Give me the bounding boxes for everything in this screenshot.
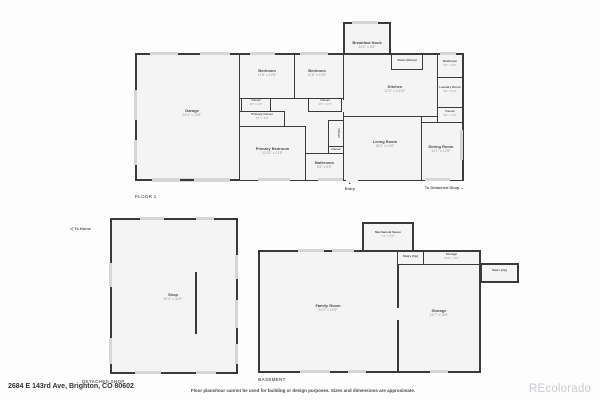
room-closet2 (308, 98, 342, 112)
room-closet3 (437, 107, 463, 123)
window-segment (200, 52, 230, 55)
window-segment (134, 90, 137, 120)
property-address: 2684 E 143rd Ave, Brighton, CO 80602 (8, 383, 134, 390)
room-primary-closet (239, 111, 285, 127)
window-segment (332, 249, 354, 252)
down-arrow-icon: ⌄ (461, 185, 464, 190)
wall-segment (180, 179, 194, 181)
window-segment (135, 371, 161, 374)
room-storage-top (423, 251, 480, 265)
recolorado-watermark: REcolorado (529, 383, 591, 395)
basement-outline (258, 250, 481, 373)
wall-segment (195, 272, 197, 334)
room-bedroom2 (294, 54, 344, 99)
window-segment (348, 370, 366, 373)
window-segment (196, 371, 216, 374)
room-bathroom-main (305, 153, 344, 181)
to-detached-shop-label: To Detached Shop ⌄ (408, 185, 464, 190)
shop-outline (110, 218, 238, 374)
window-segment (298, 249, 324, 252)
window-segment (235, 255, 238, 279)
room-stairs-up1 (397, 251, 424, 265)
window-segment (460, 130, 463, 160)
wall-segment (397, 264, 399, 308)
floor1-title: FLOOR 1 (135, 194, 157, 199)
window-segment (258, 178, 290, 181)
room-laundry (437, 77, 463, 108)
floor1-breakfast-nook-outline (343, 22, 391, 55)
room-bedroom1 (239, 54, 295, 99)
room-stairs-down (391, 54, 423, 70)
window-segment (196, 217, 214, 220)
basement-title: BASEMENT (258, 377, 286, 382)
window-segment (235, 300, 238, 328)
window-segment (150, 52, 178, 55)
entry-arrow-icon: ▲ (348, 181, 351, 185)
wall-segment (397, 320, 399, 372)
entry-label: Entry (340, 186, 360, 191)
window-segment (140, 217, 164, 220)
window-segment (300, 370, 330, 373)
window-segment (134, 140, 137, 165)
room-living (343, 116, 422, 181)
basement-stairs-bump-outline (480, 263, 519, 283)
room-dining (421, 122, 463, 181)
window-segment (235, 344, 238, 364)
room-bathroom-top (437, 54, 463, 78)
room-garage (136, 54, 240, 180)
window-segment (250, 52, 275, 55)
floorplan-page: Garage 23'4" x 23'6" Bedroom 11'8" x 12'… (0, 0, 600, 400)
to-home-label: ◁ To Home (70, 226, 91, 231)
basement-mechanical-outline (362, 222, 414, 253)
window-segment (440, 52, 456, 55)
window-segment (352, 21, 378, 24)
window-segment (318, 178, 343, 181)
window-segment (430, 370, 448, 373)
room-primary-bedroom (239, 126, 306, 181)
door-opening (240, 150, 243, 162)
room-closet1 (241, 98, 271, 112)
window-segment (300, 52, 328, 55)
door-opening (342, 100, 345, 112)
disclaimer-text: Floor plans/tour cannot be used for buil… (178, 388, 428, 393)
room-closet-tall (328, 120, 344, 147)
window-segment (109, 263, 112, 287)
window-segment (425, 178, 450, 181)
left-arrow-icon: ◁ (70, 226, 73, 231)
window-segment (109, 338, 112, 364)
